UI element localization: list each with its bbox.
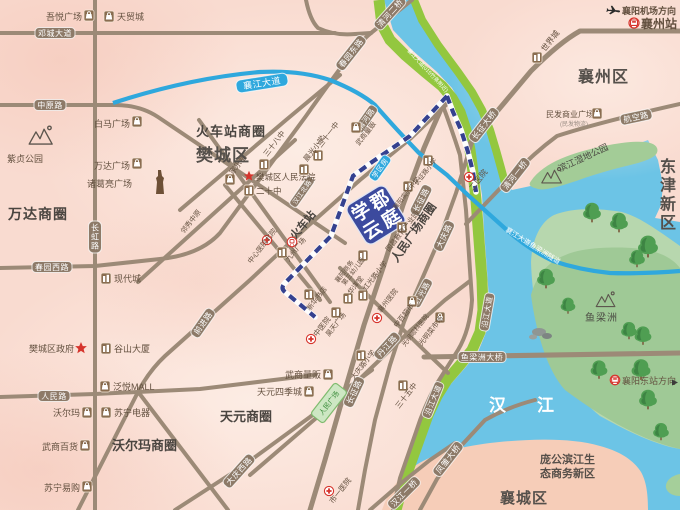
svg-text:民发商业广场: 民发商业广场 xyxy=(546,109,594,119)
svg-text:吾悦广场: 吾悦广场 xyxy=(46,11,82,22)
svg-text:苏宁易购: 苏宁易购 xyxy=(44,482,80,493)
svg-text:新: 新 xyxy=(660,194,676,213)
svg-text:武商百货: 武商百货 xyxy=(42,441,78,452)
svg-text:万达广场: 万达广场 xyxy=(94,160,130,171)
svg-text:泛悦MALL: 泛悦MALL xyxy=(113,381,155,392)
svg-text:樊城区政府: 樊城区政府 xyxy=(29,343,74,354)
svg-text:沃尔玛商圈: 沃尔玛商圈 xyxy=(112,438,177,453)
svg-text:樊城区: 樊城区 xyxy=(196,146,250,165)
svg-text:春园西路: 春园西路 xyxy=(35,262,69,272)
svg-text:沃尔玛: 沃尔玛 xyxy=(53,407,80,418)
svg-text:虹: 虹 xyxy=(91,233,99,242)
svg-text:襄阳东站方向: 襄阳东站方向 xyxy=(622,375,676,386)
svg-text:天贸城: 天贸城 xyxy=(117,11,144,22)
svg-text:中原路: 中原路 xyxy=(37,100,63,110)
svg-text:紫贞公园: 紫贞公园 xyxy=(7,153,43,164)
svg-text:鱼梁洲: 鱼梁洲 xyxy=(585,311,618,324)
svg-text:(民发物流): (民发物流) xyxy=(560,120,588,128)
svg-text:汉: 汉 xyxy=(489,396,507,415)
svg-text:武商量贩: 武商量贩 xyxy=(285,369,321,380)
svg-text:庞公滨江生: 庞公滨江生 xyxy=(540,452,595,466)
svg-text:东: 东 xyxy=(660,157,676,176)
svg-text:苏宁电器: 苏宁电器 xyxy=(114,407,150,418)
svg-text:现代城: 现代城 xyxy=(114,274,141,284)
svg-text:二十中: 二十中 xyxy=(256,186,282,196)
svg-text:天元商圈: 天元商圈 xyxy=(220,409,272,424)
svg-text:邓城大道: 邓城大道 xyxy=(38,28,72,38)
svg-text:长: 长 xyxy=(91,223,99,233)
svg-text:谷山大厦: 谷山大厦 xyxy=(114,343,150,354)
svg-text:万达商圈: 万达商圈 xyxy=(7,206,68,222)
svg-text:人民路: 人民路 xyxy=(41,391,67,401)
svg-text:津: 津 xyxy=(660,177,676,195)
svg-text:襄州站: 襄州站 xyxy=(640,16,677,31)
svg-text:火车站商圈: 火车站商圈 xyxy=(196,124,266,139)
svg-text:襄州区: 襄州区 xyxy=(577,67,629,86)
svg-text:鱼梁洲大桥: 鱼梁洲大桥 xyxy=(461,352,504,362)
svg-text:路: 路 xyxy=(91,241,99,251)
svg-text:态商务新区: 态商务新区 xyxy=(540,466,595,480)
svg-text:江: 江 xyxy=(537,396,554,415)
svg-text:天元四季城: 天元四季城 xyxy=(257,386,302,397)
svg-text:区: 区 xyxy=(660,214,676,232)
svg-text:诸葛亮广场: 诸葛亮广场 xyxy=(87,178,132,189)
svg-text:襄阳机场方向: 襄阳机场方向 xyxy=(621,5,676,16)
svg-text:襄城区: 襄城区 xyxy=(499,489,548,507)
svg-text:白马广场: 白马广场 xyxy=(94,118,130,129)
